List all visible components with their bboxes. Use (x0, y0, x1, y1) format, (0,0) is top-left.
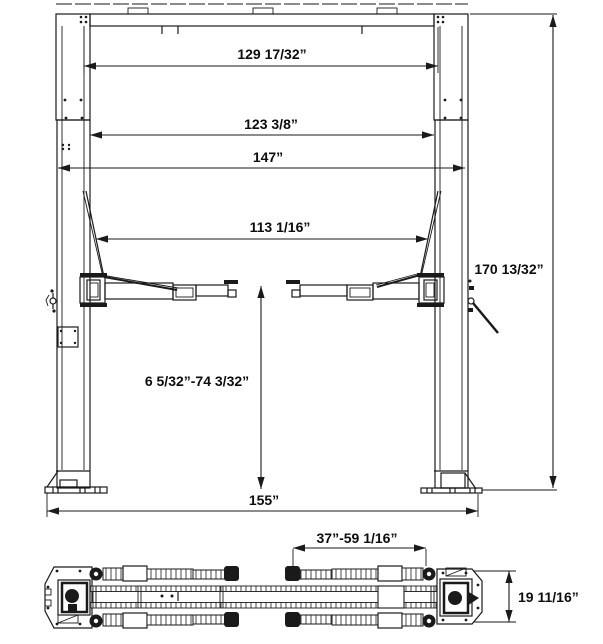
dim-top-beam-label: 129 17/32” (237, 46, 306, 62)
plan-right-front-arm (285, 566, 423, 581)
plan-left-post (45, 567, 103, 628)
right-column (434, 14, 468, 488)
dim-arm-reach: 37”-59 1/16” (293, 530, 426, 566)
overhead-beam (56, 4, 468, 34)
dim-top-beam-width: 129 17/32” (84, 27, 438, 73)
right-carriage-arm (286, 191, 444, 307)
left-base (45, 471, 107, 493)
plan-right-rear-arm (285, 612, 423, 628)
right-release-lever (468, 280, 498, 334)
plan-overhead-beam (90, 586, 437, 608)
dim-lift-range: 6 5/32”-74 3/32” (145, 286, 261, 489)
dim-base-depth: 19 11/16” (474, 571, 579, 622)
top-view: 37”-59 1/16” 19 11/16” (45, 530, 579, 628)
dim-inside-columns-label: 123 3/8” (244, 116, 298, 132)
left-column (56, 14, 90, 488)
dim-base-width: 155” (47, 492, 478, 517)
dim-base-depth-label: 19 11/16” (518, 589, 579, 605)
dim-arm-reach-label: 37”-59 1/16” (317, 530, 398, 546)
left-carriage-arm (80, 191, 238, 307)
left-release-lever (46, 289, 56, 312)
dim-outside-columns: 147” (58, 149, 465, 168)
dim-between-arms-label: 113 1/16” (250, 219, 311, 235)
dim-between-arms: 113 1/16” (96, 219, 428, 239)
dim-overall-height-label: 170 13/32” (474, 261, 543, 277)
dim-outside-columns-label: 147” (253, 149, 283, 165)
lift-dimension-drawing: 129 17/32” 123 3/8” 147” 113 1/16” 170 1… (0, 0, 603, 644)
front-view: 129 17/32” 123 3/8” 147” 113 1/16” 170 1… (45, 4, 557, 517)
plan-left-front-arm (103, 566, 239, 581)
dim-overall-height: 170 13/32” (470, 14, 557, 490)
drawing-canvas: 129 17/32” 123 3/8” 147” 113 1/16” 170 1… (0, 0, 603, 644)
dim-inside-columns: 123 3/8” (90, 116, 434, 135)
plan-left-rear-arm (103, 612, 239, 628)
dim-base-width-label: 155” (249, 492, 279, 508)
right-base (421, 471, 482, 493)
dim-lift-range-label: 6 5/32”-74 3/32” (145, 373, 249, 389)
power-unit-box (58, 327, 78, 347)
